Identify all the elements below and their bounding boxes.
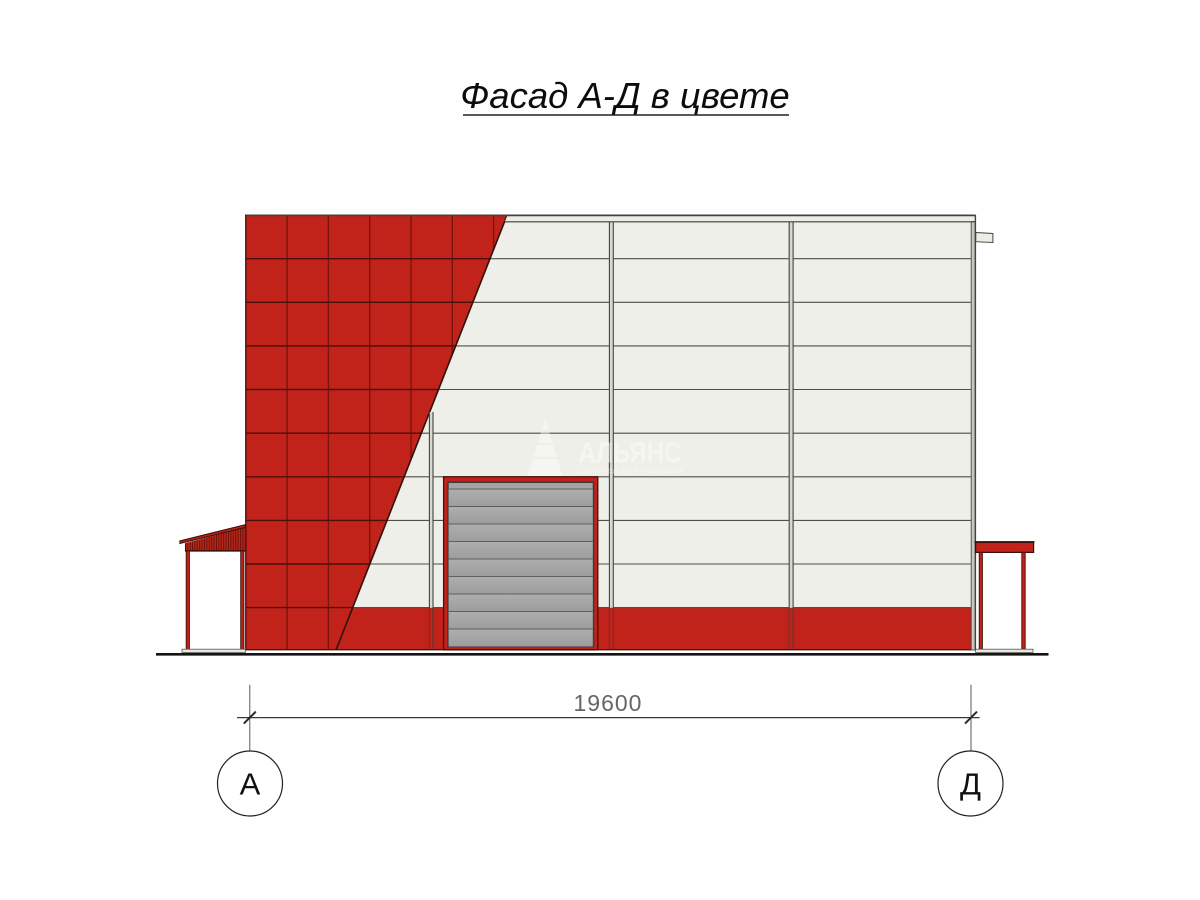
svg-text:А: А [240, 767, 261, 802]
svg-text:Д: Д [960, 767, 981, 802]
svg-text:строительная компания: строительная компания [579, 466, 683, 477]
svg-text:19600: 19600 [574, 690, 643, 716]
svg-text:Фасад А-Д в цвете: Фасад А-Д в цвете [460, 75, 789, 116]
